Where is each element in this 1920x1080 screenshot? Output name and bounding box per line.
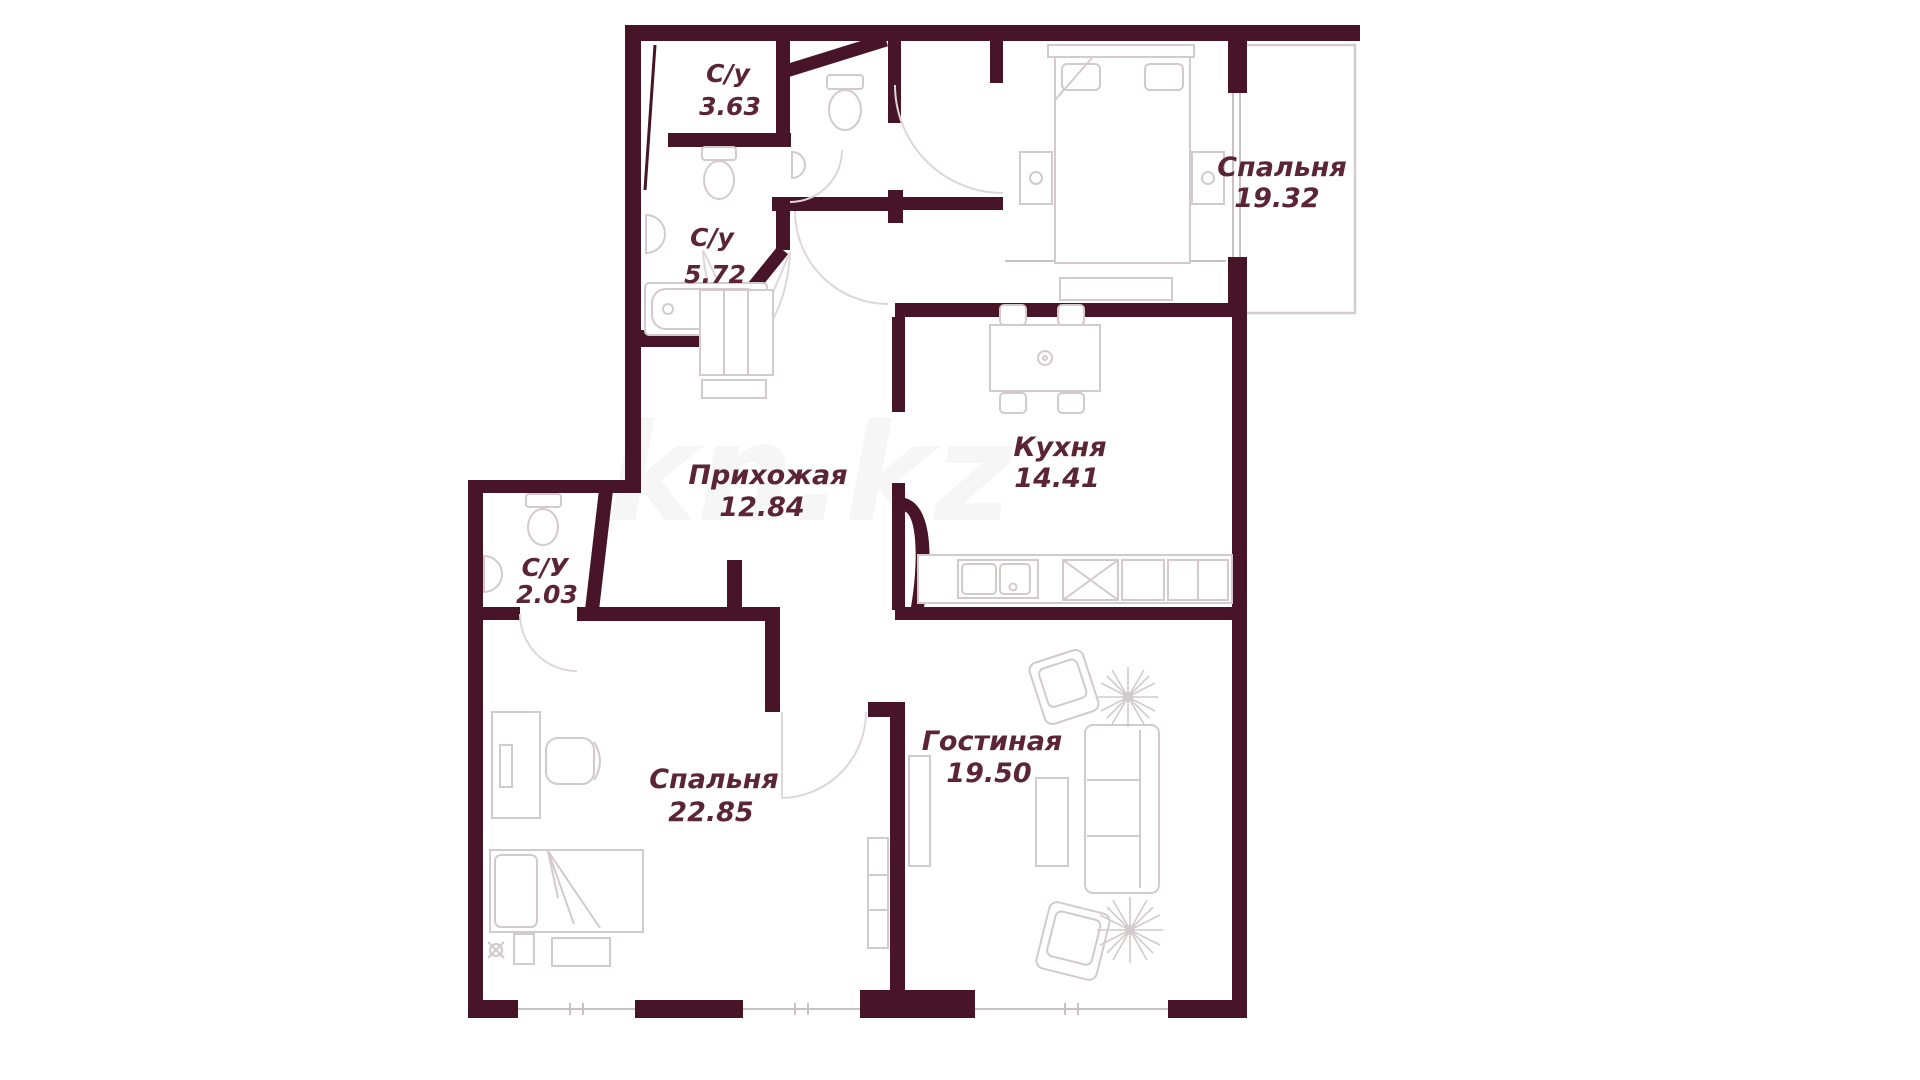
armchair-icon: [1035, 901, 1112, 982]
sink-icon: [646, 215, 665, 253]
svg-text:Гостиная: Гостиная: [922, 726, 1063, 757]
svg-text:Спальня: Спальня: [1217, 152, 1347, 183]
toilet-icon: [827, 75, 863, 130]
room-label-bedroom-2: Спальня 22.85: [649, 764, 779, 828]
svg-text:Спальня: Спальня: [649, 764, 779, 795]
svg-text:19.50: 19.50: [946, 758, 1031, 789]
svg-text:3.63: 3.63: [699, 92, 761, 121]
svg-text:19.32: 19.32: [1234, 183, 1319, 214]
sofa-icon: [1085, 725, 1159, 893]
room-label-kitchen: Кухня 14.41: [1013, 432, 1106, 494]
svg-text:5.72: 5.72: [684, 260, 746, 289]
door-arc: [782, 712, 866, 798]
kitchen-counter-icon: [918, 555, 1232, 603]
nightstand-icon: [514, 934, 534, 964]
svg-text:2.03: 2.03: [516, 580, 578, 609]
door-arc: [795, 211, 888, 304]
sink-icon: [792, 152, 805, 178]
room-label-bathroom-3: С/У 2.03: [516, 553, 578, 609]
svg-text:С/у: С/у: [706, 59, 751, 88]
toilet-icon: [526, 494, 561, 545]
svg-text:С/у: С/у: [690, 223, 735, 252]
svg-text:С/У: С/У: [522, 553, 570, 582]
bookshelf-icon: [868, 838, 888, 948]
ottoman-icon: [552, 938, 610, 966]
office-chair-icon: [546, 738, 600, 784]
svg-text:12.84: 12.84: [719, 492, 804, 523]
room-label-bathroom-2: С/у 5.72: [684, 223, 746, 289]
floor-plan-page: kn.kz: [0, 0, 1920, 1080]
svg-text:22.85: 22.85: [668, 797, 753, 828]
toilet-icon: [702, 147, 736, 199]
double-bed-icon: [1048, 45, 1194, 263]
dining-table-icon: [990, 305, 1100, 413]
wardrobe-icon: [700, 290, 773, 398]
floor-plan: kn.kz: [0, 0, 1920, 1080]
plant-icon: [1098, 667, 1158, 727]
room-label-bathroom-1: С/у 3.63: [699, 59, 761, 121]
svg-text:14.41: 14.41: [1014, 463, 1099, 494]
desk-icon: [492, 712, 540, 818]
dresser-icon: [1060, 278, 1172, 300]
single-bed-icon: [490, 850, 643, 932]
svg-text:Прихожая: Прихожая: [688, 460, 847, 491]
armchair-icon: [1027, 648, 1100, 726]
door-arc: [520, 614, 577, 671]
svg-text:Кухня: Кухня: [1013, 432, 1106, 463]
plant-icon: [488, 942, 504, 958]
door-arc: [895, 85, 1003, 193]
plant-icon: [1097, 897, 1163, 963]
nightstand-icon: [1020, 152, 1052, 204]
coffee-table-icon: [1036, 778, 1068, 866]
tv-stand-icon: [909, 756, 930, 866]
sink-icon: [484, 556, 502, 592]
room-label-bedroom-1: Спальня 19.32: [1217, 152, 1347, 214]
